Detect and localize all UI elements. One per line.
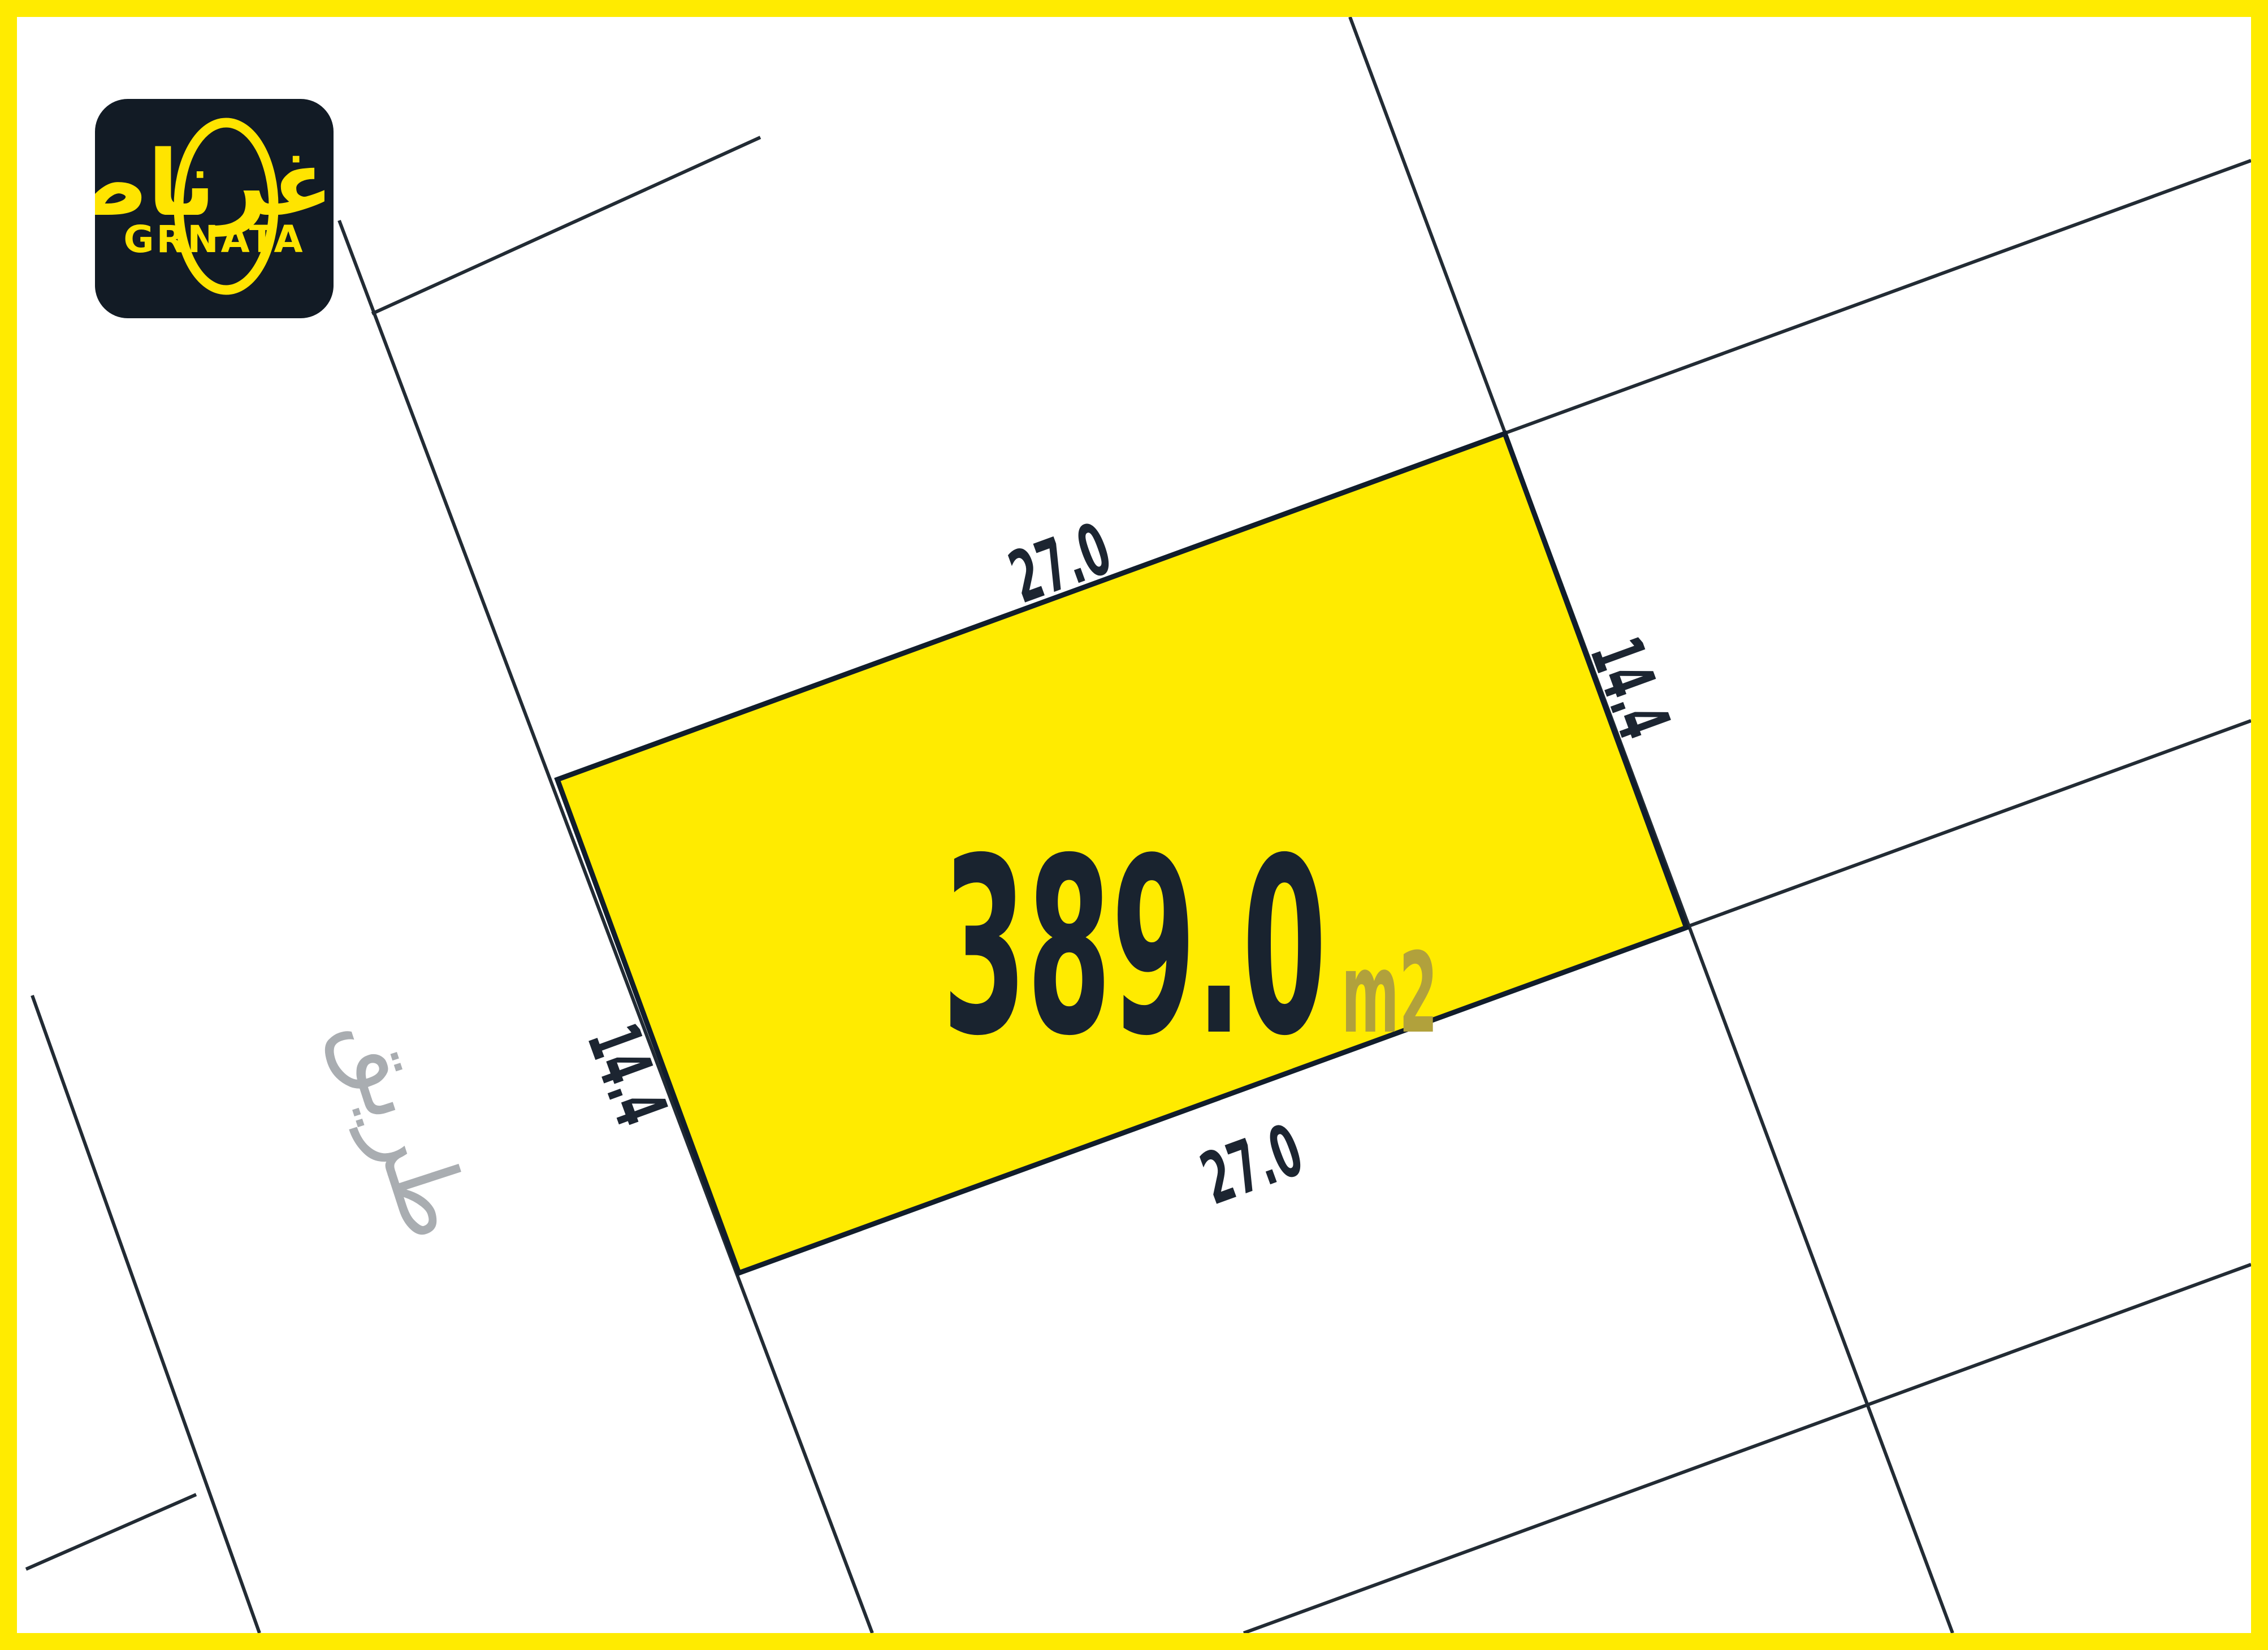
road-left-boundary-line: [32, 995, 259, 1633]
plot-area-value: 389.0: [942, 826, 1327, 1069]
land-plot-map: 27.0 14.4 14.4 27.0 389.0 m2 طريق غرناطة…: [0, 0, 2268, 1650]
parcel-boundary-line-northwest: [372, 137, 760, 314]
parcel-boundary-line-southwest: [26, 1495, 196, 1569]
logo-latin-wordmark: GRNATA: [95, 218, 334, 261]
plot-area-unit: m2: [1341, 938, 1438, 1049]
plot-area-label: 389.0 m2: [942, 826, 1438, 1069]
grnata-logo: غرناطة GRNATA: [95, 99, 334, 318]
parcel-boundary-line-southeast: [1244, 1264, 2251, 1633]
